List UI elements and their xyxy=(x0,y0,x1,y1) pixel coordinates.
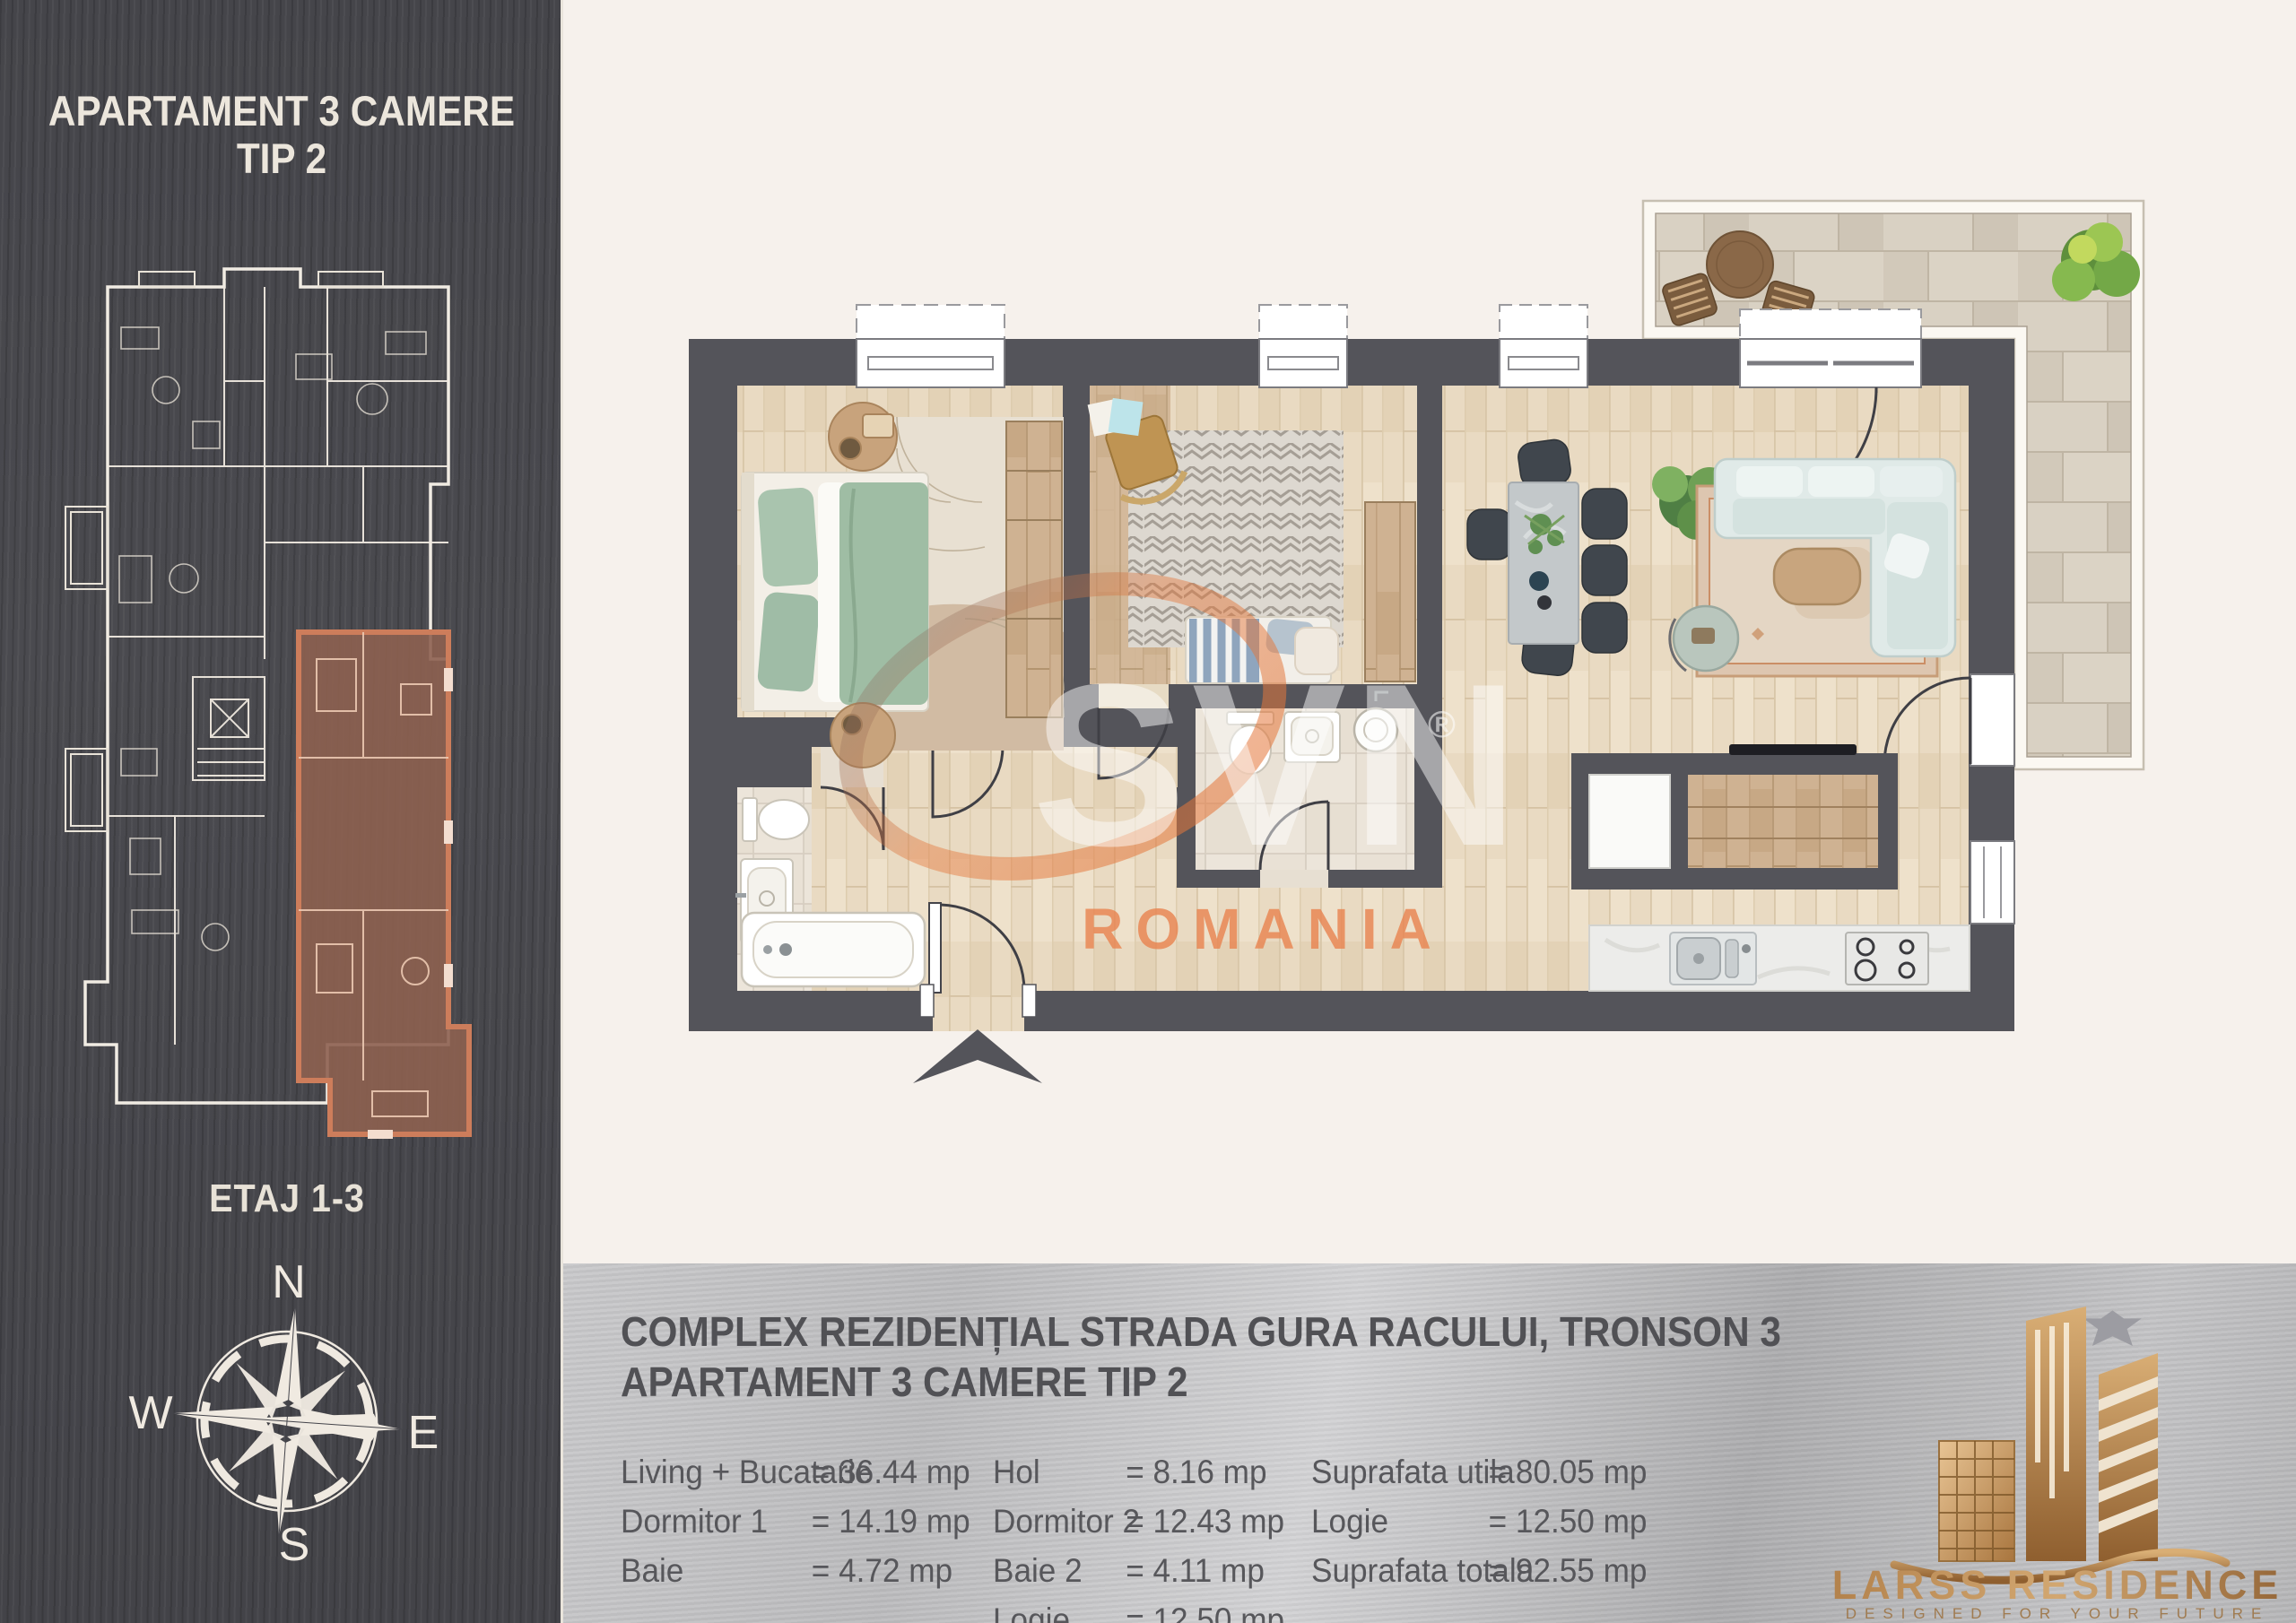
watermark-registered: ® xyxy=(1428,703,1456,745)
brochure-page: APARTAMENT 3 CAMERE TIP 2 xyxy=(0,0,2296,1623)
footer-band: COMPLEX REZIDENȚIAL STRADA GURA RACULUI,… xyxy=(563,1263,2296,1623)
area-value: = 92.55 mp xyxy=(1489,1546,1648,1595)
areas-column-3: Suprafata utila = 80.05 mp Logie = 12.50… xyxy=(1311,1447,1647,1595)
window-dormitor2 xyxy=(1259,305,1347,387)
area-row: Suprafata totala = 92.55 mp xyxy=(1311,1546,1647,1595)
area-row: Living + Bucatarie = 36.44 mp xyxy=(621,1447,970,1497)
window-dormitor1 xyxy=(857,305,1004,387)
area-row: Logie = 12.50 mp xyxy=(1311,1497,1647,1546)
bathtub xyxy=(742,913,925,986)
area-row: Baie 2 = 4.11 mp xyxy=(993,1546,1284,1595)
page-title-line2: TIP 2 xyxy=(28,135,535,183)
papers xyxy=(1088,398,1144,437)
area-value: = 8.16 mp xyxy=(1126,1447,1266,1497)
area-label: Baie 2 xyxy=(993,1546,1126,1595)
compass-north-label: N xyxy=(272,1256,306,1308)
area-label: Suprafata totala xyxy=(1311,1546,1489,1595)
area-row: Suprafata utila = 80.05 mp xyxy=(1311,1447,1647,1497)
project-title-line1: COMPLEX REZIDENȚIAL STRADA GURA RACULUI,… xyxy=(621,1306,1781,1357)
area-row: Logie = 12.50 mp xyxy=(993,1595,1284,1623)
area-value: = 36.44 mp xyxy=(812,1447,970,1497)
keyplan-highlighted-unit xyxy=(299,632,469,1139)
area-label: Logie xyxy=(1311,1497,1489,1546)
kitchen-window xyxy=(1970,841,2014,924)
area-row: Hol = 8.16 mp xyxy=(993,1447,1284,1497)
kitchen-counter xyxy=(1589,925,1970,991)
kitchen-sink xyxy=(1670,933,1756,985)
brand-name: LARSS RESIDENCE xyxy=(1833,1562,2282,1608)
logo-buildings-icon xyxy=(1894,1306,2226,1580)
compass-rose-icon: N S E W xyxy=(126,1255,448,1587)
tv xyxy=(1729,744,1857,755)
entrance-arrow-icon xyxy=(913,1029,1042,1083)
area-label: Logie xyxy=(993,1595,1126,1623)
area-label: Suprafata utila xyxy=(1311,1447,1489,1497)
watermark-region: ROMANIA xyxy=(1082,897,1444,961)
keyplan-floor-overview xyxy=(49,247,516,1161)
area-label: Baie xyxy=(621,1546,812,1595)
area-label: Dormitor 1 xyxy=(621,1497,812,1546)
window-living xyxy=(1500,305,1587,387)
area-value: = 4.11 mp xyxy=(1126,1546,1265,1595)
page-title-line1: APARTAMENT 3 CAMERE xyxy=(28,88,535,135)
area-value: = 12.50 mp xyxy=(1126,1595,1284,1623)
area-value: = 80.05 mp xyxy=(1489,1447,1648,1497)
area-row: Dormitor 1 = 14.19 mp xyxy=(621,1497,970,1546)
kitchen-hob xyxy=(1846,933,1928,985)
area-label: Hol xyxy=(993,1447,1126,1497)
area-value: = 12.50 mp xyxy=(1489,1497,1648,1546)
developer-logo: LARSS RESIDENCE DESIGNED FOR YOUR FUTURE xyxy=(1833,1265,2282,1622)
compass-south-label: S xyxy=(279,1519,310,1571)
area-label: Dormitor 2 xyxy=(993,1497,1126,1546)
logo-star xyxy=(2083,1310,2142,1346)
area-value: = 14.19 mp xyxy=(812,1497,970,1546)
area-value: = 4.72 mp xyxy=(812,1546,952,1595)
area-value: = 12.43 mp xyxy=(1126,1497,1284,1546)
coffee-table xyxy=(1774,549,1860,604)
compass-west-label: W xyxy=(128,1387,172,1439)
floor-label: ETAJ 1-3 xyxy=(29,1176,545,1221)
sidebar: APARTAMENT 3 CAMERE TIP 2 xyxy=(0,0,563,1623)
toilet-baie xyxy=(743,798,809,841)
apartment-floorplan: SVN ® ROMANIA xyxy=(563,0,2296,1264)
area-row: Baie = 4.72 mp xyxy=(621,1546,970,1595)
brand-tagline: DESIGNED FOR YOUR FUTURE xyxy=(1846,1605,2270,1622)
page-title: APARTAMENT 3 CAMERE TIP 2 xyxy=(28,88,535,182)
area-row: Dormitor 2 = 12.43 mp xyxy=(993,1497,1284,1546)
watermark-brand: SVN xyxy=(1032,635,1525,894)
area-label: Living + Bucatarie xyxy=(621,1447,812,1497)
compass-east-label: E xyxy=(408,1407,439,1459)
areas-column-1: Living + Bucatarie = 36.44 mp Dormitor 1… xyxy=(621,1447,970,1595)
areas-column-2: Hol = 8.16 mp Dormitor 2 = 12.43 mp Baie… xyxy=(993,1447,1284,1623)
project-title: COMPLEX REZIDENȚIAL STRADA GURA RACULUI,… xyxy=(621,1306,1781,1407)
tv-island xyxy=(1571,744,1898,890)
project-title-line2: APARTAMENT 3 CAMERE TIP 2 xyxy=(621,1357,1781,1407)
